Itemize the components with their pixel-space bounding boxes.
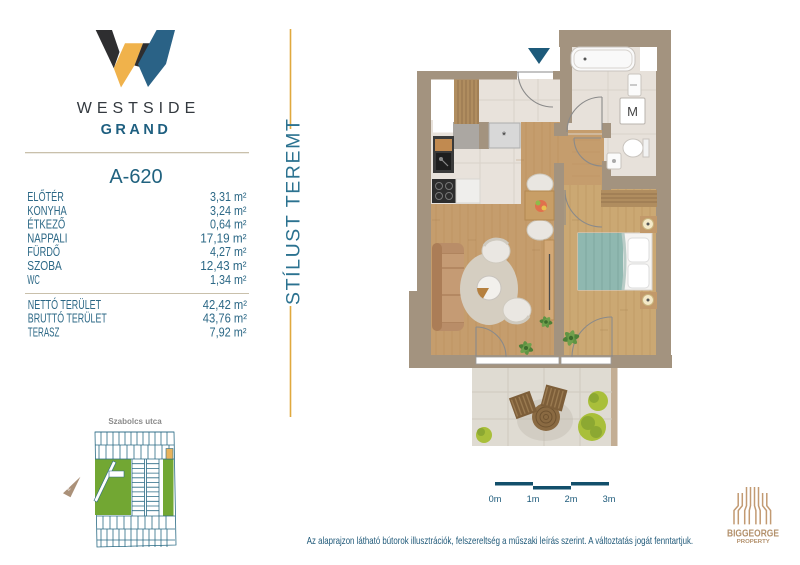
svg-text:1,34 m²: 1,34 m² — [210, 273, 247, 287]
svg-text:STÍLUST TEREMT: STÍLUST TEREMT — [282, 118, 305, 305]
svg-text:4,27 m²: 4,27 m² — [210, 245, 247, 259]
svg-text:KONYHA: KONYHA — [27, 204, 67, 218]
svg-text:WC: WC — [27, 273, 40, 287]
svg-text:7,92 m²: 7,92 m² — [210, 326, 247, 340]
svg-text:0,64 m²: 0,64 m² — [210, 218, 247, 232]
svg-text:3,31 m²: 3,31 m² — [210, 190, 247, 204]
svg-text:2m: 2m — [565, 494, 578, 504]
svg-text:42,42 m²: 42,42 m² — [203, 298, 247, 312]
svg-text:17,19 m²: 17,19 m² — [200, 231, 246, 245]
svg-text:WESTSIDE: WESTSIDE — [77, 100, 201, 117]
svg-text:PROPERTY: PROPERTY — [737, 539, 770, 545]
svg-text:ÉTKEZŐ: ÉTKEZŐ — [27, 217, 65, 232]
svg-text:0m: 0m — [489, 494, 502, 504]
svg-text:12,43 m²: 12,43 m² — [200, 259, 246, 273]
svg-text:FÜRDŐ: FÜRDŐ — [27, 244, 60, 259]
svg-text:43,76 m²: 43,76 m² — [203, 312, 247, 326]
svg-text:3m: 3m — [603, 494, 616, 504]
svg-text:TERASZ: TERASZ — [28, 326, 60, 340]
svg-text:1m: 1m — [527, 494, 540, 504]
svg-text:NETTÓ TERÜLET: NETTÓ TERÜLET — [28, 297, 102, 312]
svg-text:NAPPALI: NAPPALI — [27, 231, 67, 245]
svg-text:*: * — [502, 130, 507, 142]
svg-text:SZOBA: SZOBA — [27, 259, 62, 273]
svg-text:Az alaprajzon látható bútorok: Az alaprajzon látható bútorok illusztrác… — [307, 535, 693, 547]
svg-text:ELŐTÉR: ELŐTÉR — [27, 189, 64, 204]
svg-text:GRAND: GRAND — [101, 122, 172, 138]
svg-text:BIGGEORGE: BIGGEORGE — [727, 529, 779, 540]
svg-text:BRUTTÓ TERÜLET: BRUTTÓ TERÜLET — [28, 311, 107, 326]
svg-text:3,24 m²: 3,24 m² — [210, 204, 247, 218]
svg-text:M: M — [627, 104, 638, 119]
